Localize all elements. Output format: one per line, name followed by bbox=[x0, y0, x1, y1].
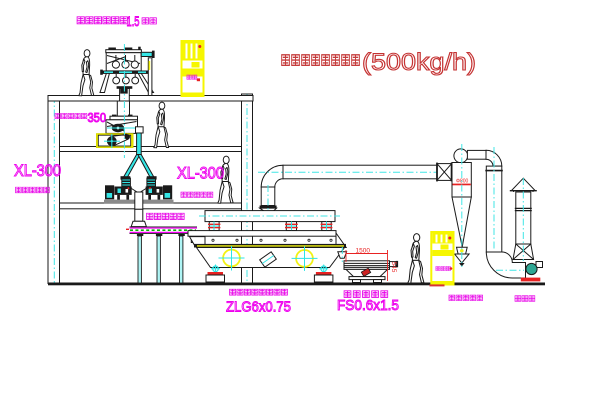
svg-text:1.5: 1.5 bbox=[127, 13, 140, 29]
svg-text:545: 545 bbox=[390, 262, 397, 273]
svg-text:350: 350 bbox=[88, 111, 107, 125]
svg-text:1500: 1500 bbox=[356, 248, 371, 255]
svg-text:XL-300: XL-300 bbox=[14, 161, 61, 180]
svg-text:(500kg/h): (500kg/h) bbox=[362, 49, 476, 76]
svg-text:FS0.6x1.5: FS0.6x1.5 bbox=[337, 297, 399, 314]
svg-text:ZLG6x0.75: ZLG6x0.75 bbox=[226, 299, 291, 316]
svg-text:XL-300: XL-300 bbox=[177, 164, 224, 183]
